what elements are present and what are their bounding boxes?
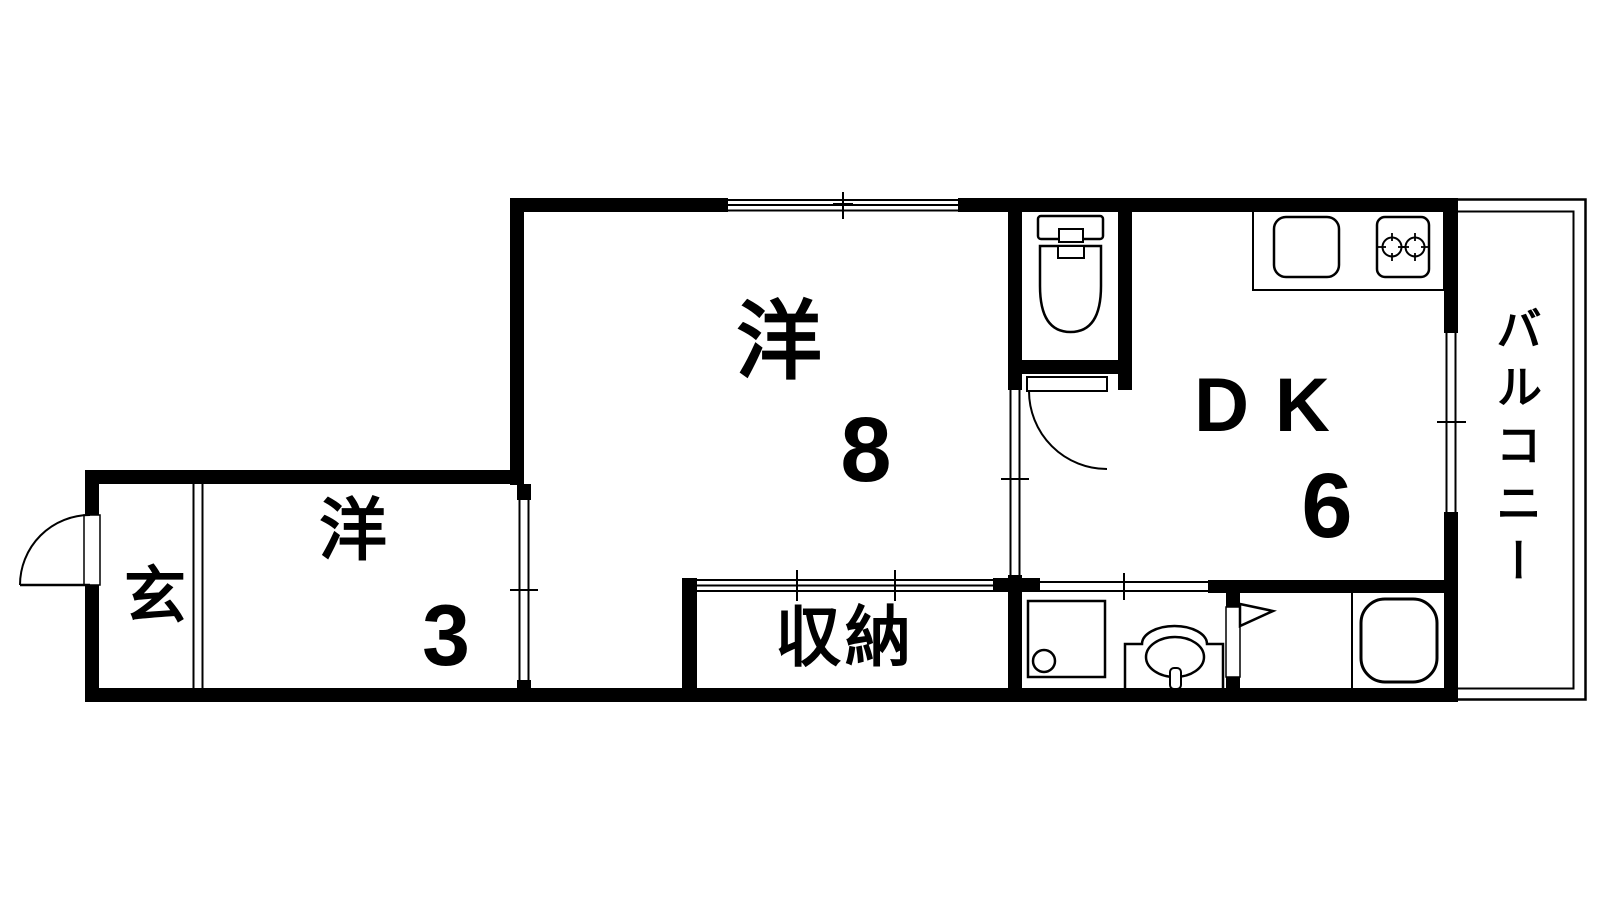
faucet bbox=[1170, 668, 1181, 689]
door-direction-flag bbox=[1240, 604, 1273, 626]
toilet-swing-door-icon bbox=[1027, 377, 1107, 469]
wall-segment bbox=[682, 578, 697, 702]
entrance-divider bbox=[194, 484, 203, 688]
door-swing-arc bbox=[1029, 391, 1107, 469]
washing-machine-pan-icon bbox=[1028, 601, 1105, 677]
wall-segment bbox=[517, 680, 531, 688]
wall-segment bbox=[510, 198, 728, 212]
wall-segment bbox=[1022, 360, 1132, 374]
room-label-western3-size: 3 bbox=[422, 593, 470, 679]
sliding-door-western3 bbox=[510, 500, 538, 680]
two-burner-stove-icon bbox=[1377, 217, 1429, 277]
toilet-icon bbox=[1038, 216, 1103, 332]
room-label-western3-name: 洋 bbox=[319, 497, 387, 565]
door-leaf bbox=[1027, 377, 1107, 391]
room-label-entrance: 玄 bbox=[124, 566, 186, 628]
room-label-western8-name: 洋 bbox=[736, 299, 822, 385]
room-label-balcony: バルコニー bbox=[1493, 305, 1539, 595]
wall-segment bbox=[517, 484, 531, 500]
room-label-western8-size: 8 bbox=[840, 404, 891, 496]
drain bbox=[1033, 650, 1055, 672]
window-washroom-top bbox=[1040, 573, 1208, 600]
wall-segment bbox=[1208, 580, 1444, 593]
toilet-flush-button bbox=[1059, 229, 1083, 242]
wall-segment bbox=[1008, 212, 1022, 390]
window-dk-balcony bbox=[1437, 333, 1466, 512]
kitchen-sink-icon bbox=[1274, 217, 1339, 277]
wall-segment bbox=[993, 578, 1040, 592]
washbasin-icon bbox=[1125, 626, 1223, 689]
wall-segment bbox=[85, 688, 1458, 702]
wall-segment bbox=[1444, 198, 1458, 333]
toilet-seat-hinge bbox=[1058, 246, 1084, 258]
entrance-swing-door-icon bbox=[20, 515, 100, 585]
wall-segment bbox=[1226, 677, 1240, 702]
window-western8-top bbox=[728, 192, 958, 219]
room-label-dk-size: 6 bbox=[1301, 460, 1352, 552]
storage-sliding-door bbox=[697, 570, 993, 601]
bathtub-icon bbox=[1361, 599, 1437, 682]
door-panel bbox=[1226, 607, 1240, 677]
room-label-dk-name: DK bbox=[1194, 368, 1356, 444]
kitchen-counter bbox=[1253, 211, 1444, 290]
floor-plan-canvas: 洋 8 DK 6 洋 3 玄 収納 バルコニー bbox=[0, 0, 1600, 900]
wall-segment bbox=[958, 198, 1458, 212]
bathroom-folding-door-icon bbox=[1226, 604, 1273, 677]
wall-segment bbox=[85, 470, 524, 484]
sliding-door-western8-dk bbox=[1001, 390, 1029, 575]
door-panel bbox=[84, 515, 100, 585]
wall-segment bbox=[1444, 512, 1458, 702]
door-swing-arc bbox=[20, 515, 90, 585]
room-label-storage: 収納 bbox=[775, 604, 915, 670]
wall-segment bbox=[85, 470, 99, 515]
wall-segment bbox=[510, 198, 524, 485]
floor-plan-drawing bbox=[0, 0, 1600, 900]
wall-segment bbox=[85, 585, 99, 702]
wall-segment bbox=[1226, 593, 1240, 607]
